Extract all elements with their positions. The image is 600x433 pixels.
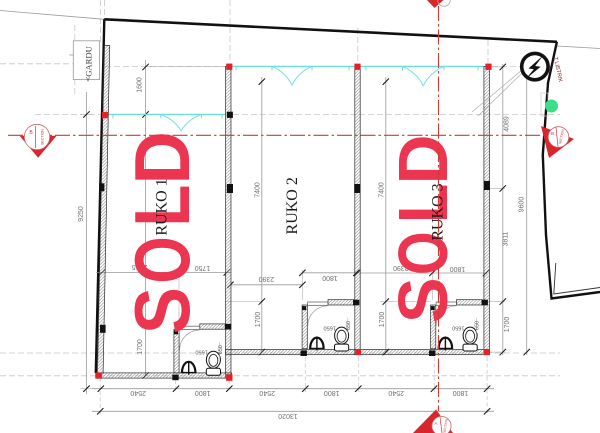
svg-text:9250: 9250 — [78, 206, 85, 222]
svg-text:1800: 1800 — [195, 389, 211, 396]
svg-text:S: S — [383, 277, 462, 323]
svg-text:1700: 1700 — [137, 339, 144, 355]
svg-text:S: S — [119, 287, 206, 334]
svg-text:13020: 13020 — [278, 412, 298, 419]
svg-text:T.LISTRIK: T.LISTRIK — [552, 57, 563, 83]
svg-text:1800: 1800 — [322, 274, 338, 281]
svg-text:2540: 2540 — [388, 389, 404, 396]
svg-text:1700: 1700 — [255, 312, 262, 328]
svg-text:D: D — [384, 134, 462, 184]
svg-text:O: O — [385, 231, 462, 275]
svg-text:3811: 3811 — [503, 231, 510, 246]
svg-text:4089: 4089 — [504, 116, 511, 132]
svg-text:9600: 9600 — [519, 197, 526, 213]
svg-text:1650: 1650 — [195, 349, 207, 355]
svg-text:7400: 7400 — [254, 182, 261, 198]
svg-text:2540: 2540 — [130, 389, 146, 396]
svg-text:1800: 1800 — [453, 389, 469, 396]
svg-text:650: 650 — [218, 345, 224, 354]
svg-text:L: L — [385, 184, 463, 224]
svg-text:RUKO 2: RUKO 2 — [284, 177, 301, 234]
svg-text:B: B — [551, 131, 554, 136]
svg-text:1700: 1700 — [504, 317, 511, 333]
svg-text:SECTION: SECTION — [41, 129, 45, 145]
svg-text:GARDU: GARDU — [83, 45, 93, 76]
svg-text:A: A — [435, 421, 438, 426]
svg-text:2540: 2540 — [259, 389, 275, 396]
svg-text:O: O — [119, 236, 206, 283]
svg-text:1600: 1600 — [136, 77, 143, 93]
svg-text:1800: 1800 — [324, 389, 340, 396]
svg-text:RUKO 1: RUKO 1 — [154, 178, 171, 235]
svg-text:D: D — [119, 131, 206, 185]
svg-text:2390: 2390 — [259, 275, 275, 282]
